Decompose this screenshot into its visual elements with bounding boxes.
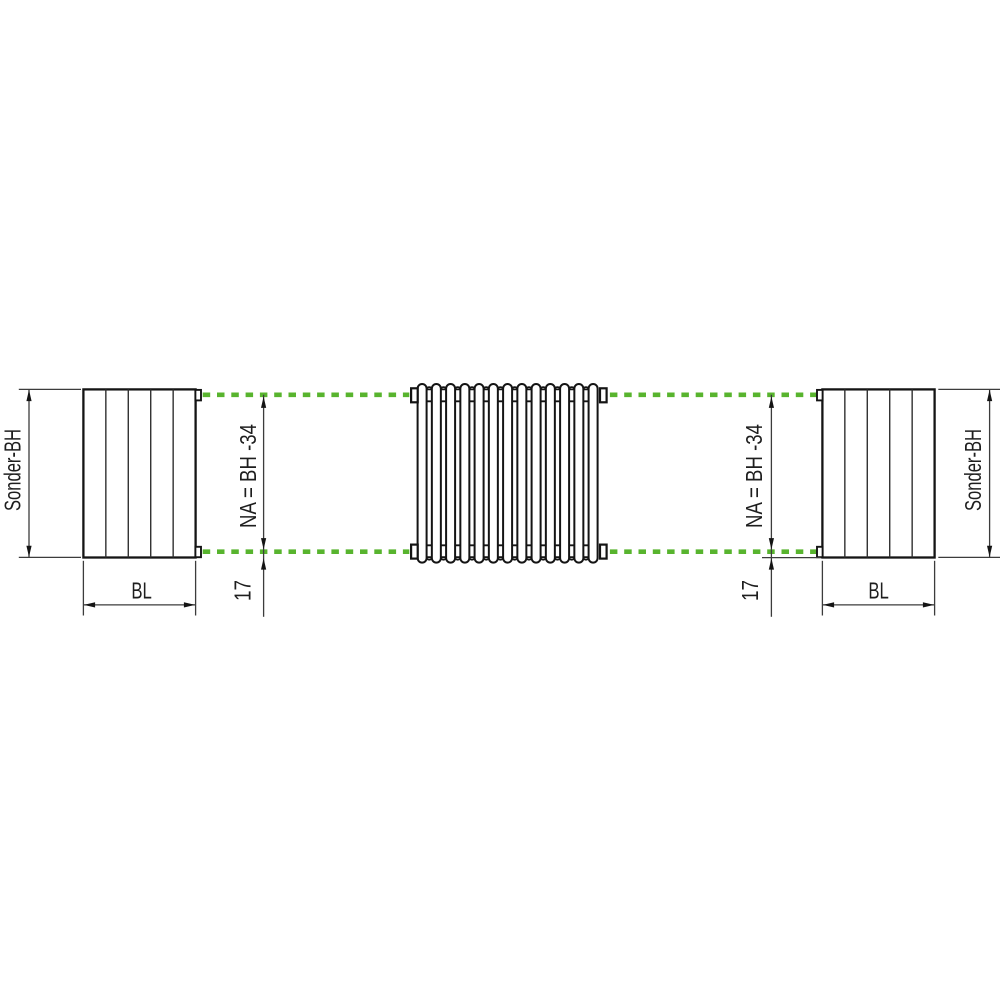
svg-text:Sonder-BH: Sonder-BH — [960, 429, 986, 511]
svg-text:17: 17 — [737, 580, 763, 601]
svg-text:17: 17 — [230, 580, 256, 601]
svg-text:Sonder-BH: Sonder-BH — [0, 429, 25, 511]
svg-text:NA = BH -34: NA = BH -34 — [741, 424, 767, 528]
svg-text:NA = BH -34: NA = BH -34 — [235, 424, 261, 528]
svg-text:BL: BL — [131, 577, 152, 603]
svg-text:BL: BL — [868, 577, 889, 603]
